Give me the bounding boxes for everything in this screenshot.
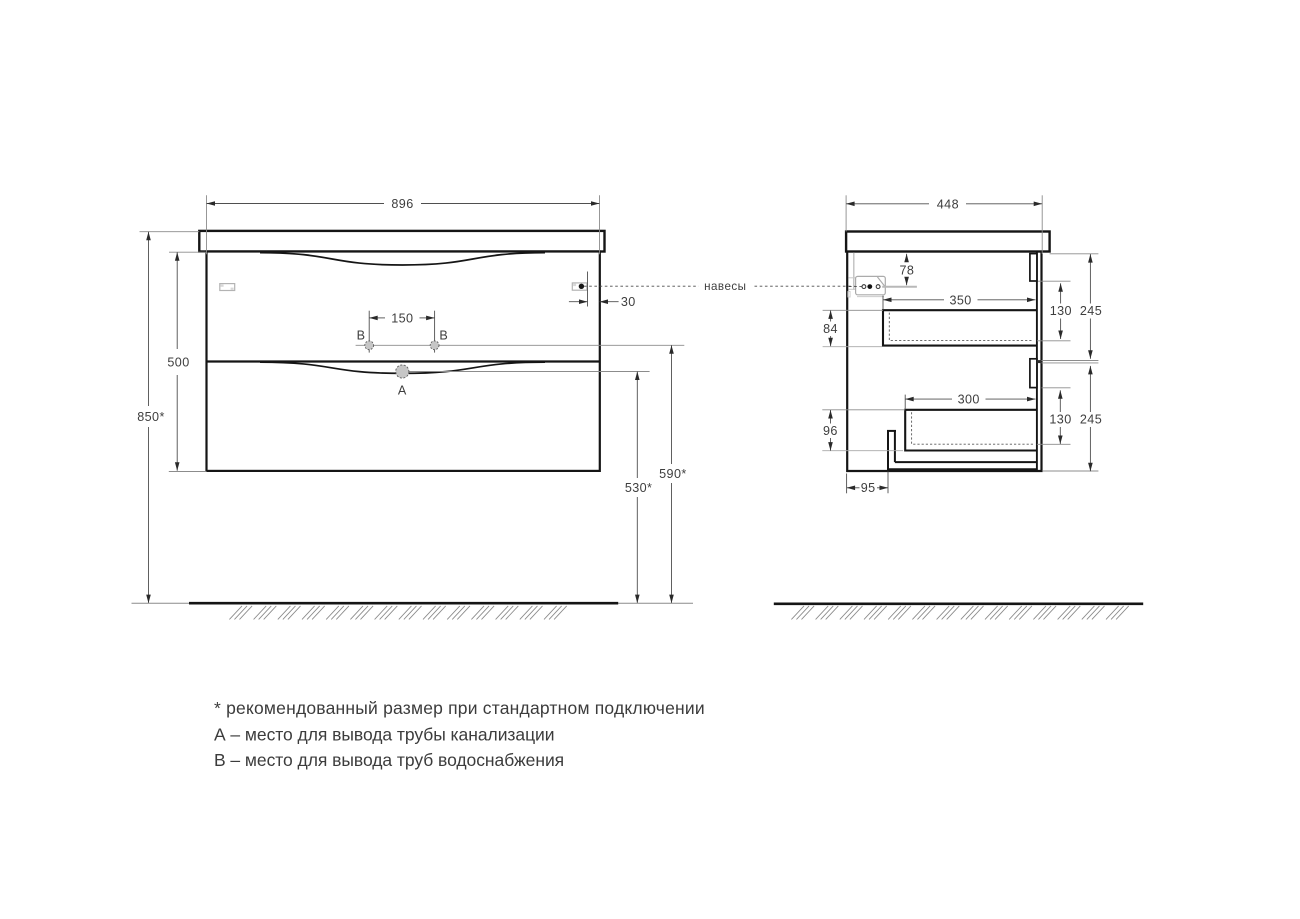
svg-text:130: 130 <box>1050 304 1072 318</box>
svg-text:850*: 850* <box>137 410 165 424</box>
svg-text:245: 245 <box>1080 413 1102 427</box>
svg-text:350: 350 <box>949 293 971 307</box>
svg-text:448: 448 <box>937 197 959 211</box>
svg-text:78: 78 <box>899 263 914 277</box>
svg-text:А – место для вывода трубы кан: А – место для вывода трубы канализации <box>214 725 555 745</box>
svg-text:500: 500 <box>167 355 189 369</box>
svg-text:150: 150 <box>391 311 413 325</box>
svg-text:530*: 530* <box>625 481 653 495</box>
svg-text:300: 300 <box>958 393 980 407</box>
svg-text:590*: 590* <box>659 467 687 481</box>
svg-text:245: 245 <box>1080 304 1102 318</box>
svg-text:B: B <box>357 328 366 342</box>
svg-text:A: A <box>398 383 407 397</box>
svg-text:30: 30 <box>621 295 636 309</box>
svg-text:130: 130 <box>1049 413 1071 427</box>
svg-text:* рекомендованный размер при с: * рекомендованный размер при стандартном… <box>214 698 705 718</box>
svg-text:896: 896 <box>391 197 413 211</box>
svg-text:96: 96 <box>823 424 838 438</box>
svg-text:84: 84 <box>823 322 838 336</box>
svg-text:навесы: навесы <box>704 280 746 293</box>
svg-text:B: B <box>439 328 448 342</box>
svg-text:95: 95 <box>861 481 876 495</box>
svg-text:В – место для вывода труб водо: В – место для вывода труб водоснабжения <box>214 750 564 770</box>
